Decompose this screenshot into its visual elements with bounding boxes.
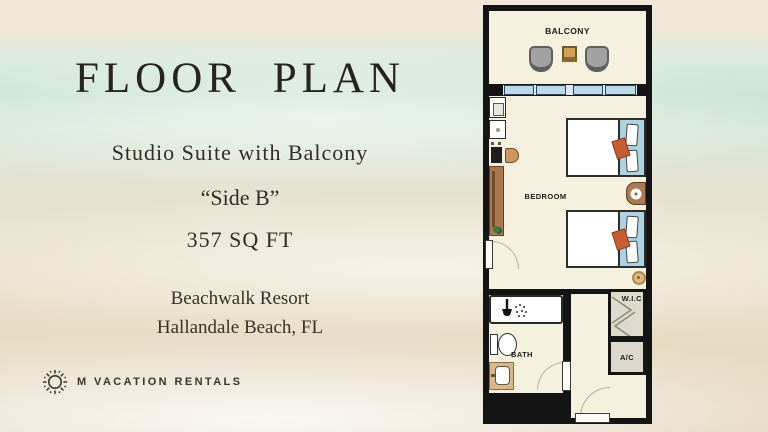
- sliding-window: [503, 85, 637, 95]
- bedroom-label: BEDROOM: [503, 192, 588, 201]
- bed-2: [566, 210, 646, 268]
- balcony-chair-left: [529, 46, 553, 72]
- sun-icon: [42, 368, 68, 396]
- balcony-chair-right: [585, 46, 609, 72]
- brand-name: M VACATION RENTALS: [77, 376, 242, 388]
- connecting-door-leaf: [485, 240, 493, 269]
- window-pane: [536, 85, 566, 95]
- area-label: 357 SQ FT: [0, 227, 480, 253]
- balcony-table: [562, 46, 577, 62]
- beach-poster-background: FLOOR PLAN Studio Suite with Balcony “Si…: [0, 0, 768, 432]
- floor-plan: BALCONY BEDROOM: [483, 5, 652, 424]
- wardrobe-counter: [489, 166, 504, 236]
- window-pane: [605, 85, 636, 95]
- bath-door-leaf: [562, 361, 571, 391]
- counter-edge: [492, 171, 495, 227]
- headboard: [618, 212, 644, 266]
- knob-icon: [498, 142, 501, 145]
- lamp-icon: [631, 188, 642, 199]
- shower-head-icon: [501, 299, 531, 321]
- knob-icon: [491, 142, 494, 145]
- burner-icon: [496, 128, 500, 132]
- page-title: FLOOR PLAN: [0, 54, 480, 103]
- side-table: [632, 271, 646, 285]
- closet-rods-icon: [611, 296, 637, 341]
- bath-label: BATH: [511, 350, 533, 359]
- nightstand: [626, 182, 646, 205]
- resort-location: Hallandale Beach, FL: [0, 317, 480, 339]
- left-panel: FLOOR PLAN Studio Suite with Balcony “Si…: [0, 0, 480, 432]
- brand-logo: M VACATION RENTALS: [42, 368, 242, 396]
- plant-icon: [493, 226, 500, 233]
- headboard: [618, 120, 644, 175]
- ac-closet: A/C: [608, 339, 646, 375]
- faucet-icon: [491, 374, 496, 377]
- window-pane: [573, 85, 603, 95]
- balcony-label: BALCONY: [483, 26, 652, 36]
- cooktop: [489, 120, 506, 139]
- bottom-wall-block: [483, 393, 569, 424]
- pillow: [625, 124, 639, 147]
- ac-label: A/C: [611, 353, 643, 362]
- mini-fridge: [491, 147, 502, 163]
- entry-door-leaf: [575, 413, 610, 423]
- shower: [489, 295, 563, 324]
- basin: [495, 366, 510, 385]
- bath-wall: [563, 289, 571, 362]
- sink-vanity: [489, 362, 514, 390]
- stool: [505, 148, 519, 163]
- side-label: “Side B”: [0, 185, 480, 211]
- bed-1: [566, 118, 646, 177]
- resort-name: Beachwalk Resort: [0, 288, 480, 310]
- pillow: [625, 216, 639, 239]
- kitchenette-appliance: [489, 97, 506, 118]
- toilet-tank: [490, 334, 498, 355]
- wic-closet: W.I.C: [608, 289, 646, 339]
- suite-subtitle: Studio Suite with Balcony: [0, 140, 480, 166]
- window-pane: [504, 85, 534, 95]
- side-table-center: [637, 276, 640, 279]
- microwave-icon: [493, 103, 504, 116]
